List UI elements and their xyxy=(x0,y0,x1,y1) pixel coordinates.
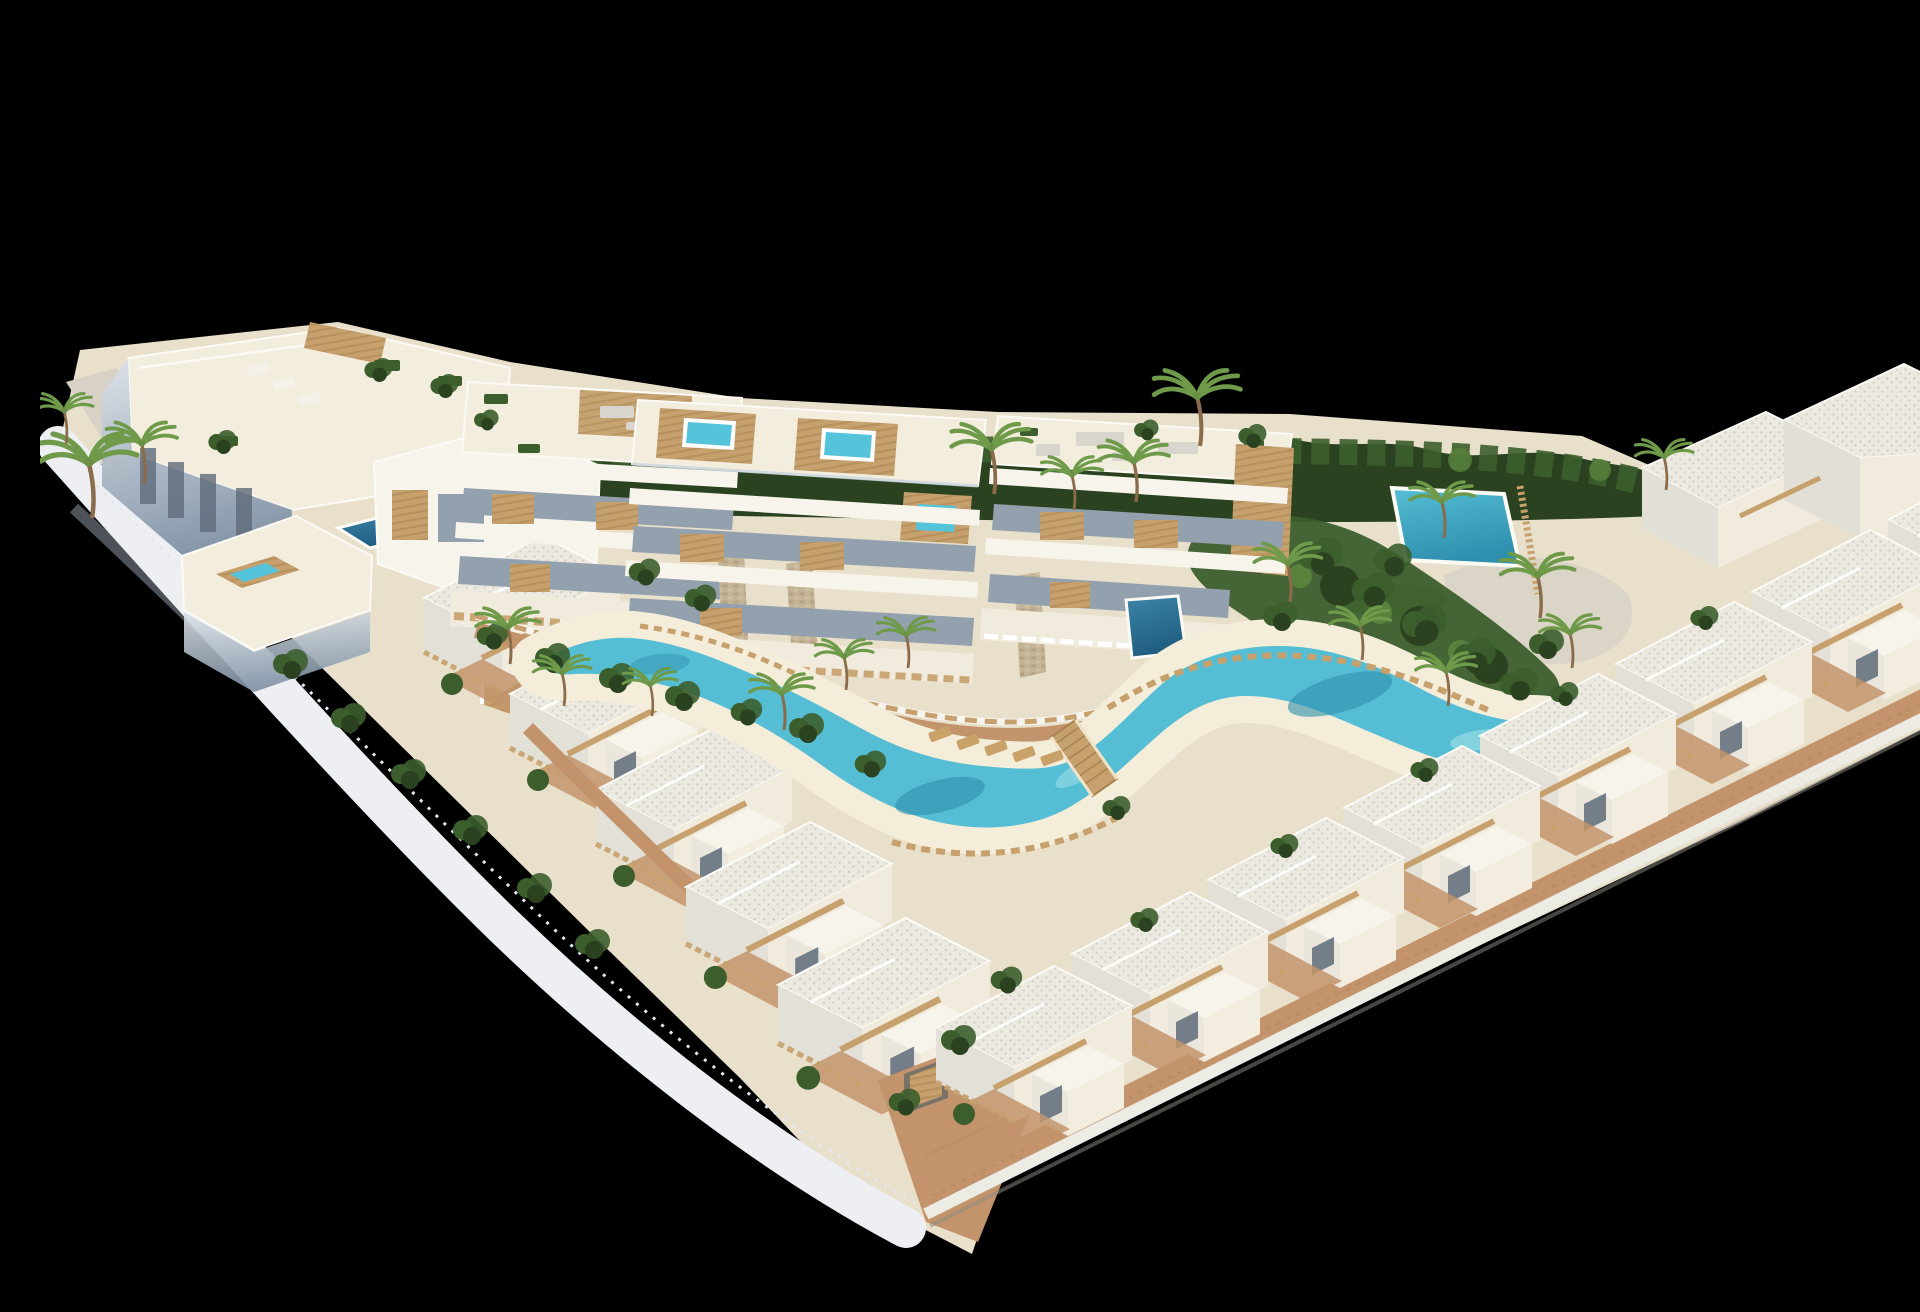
c1-wood-shutter-2 xyxy=(596,502,638,530)
c3-wood-shutter-1 xyxy=(1040,512,1084,540)
c1-wood-shutter-3 xyxy=(510,564,550,592)
c1-wood-shutter-1 xyxy=(492,494,534,524)
c3-wood-shutter-2 xyxy=(1134,520,1178,548)
c2-wood-shutter-1 xyxy=(680,534,724,562)
l2-wood-panel xyxy=(392,490,428,540)
render-canvas xyxy=(40,16,1920,1296)
c2-wood-shutter-2 xyxy=(800,542,844,570)
c3-wood-shutter-3 xyxy=(1050,582,1090,608)
c2-hot-tub-1 xyxy=(686,422,732,446)
c2-hot-tub-2 xyxy=(824,432,872,458)
architectural-render: Aerial 3D architectural rendering of a w… xyxy=(40,16,1920,1296)
